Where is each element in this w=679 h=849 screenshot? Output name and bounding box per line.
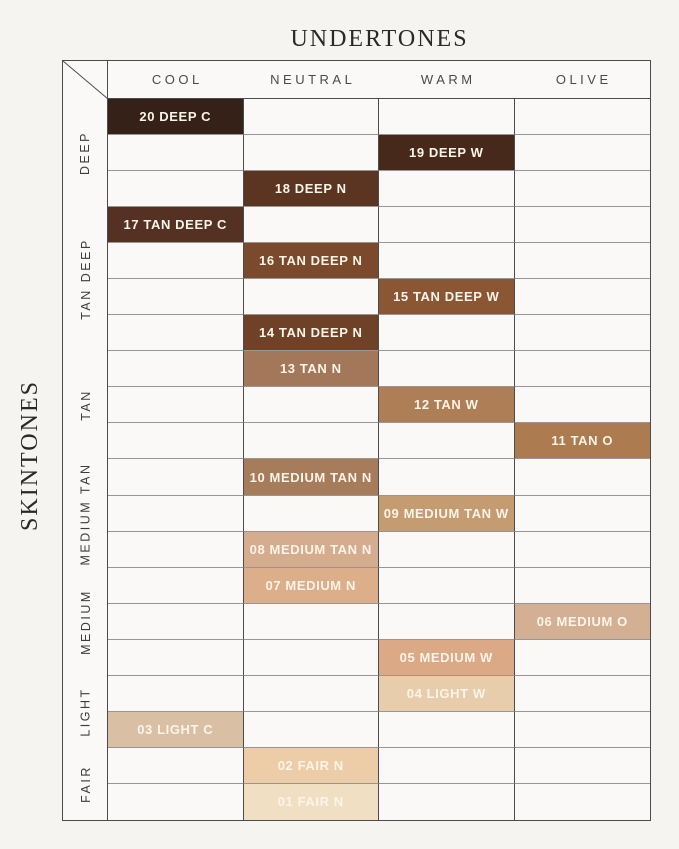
empty-cell (244, 207, 380, 243)
empty-cell (108, 171, 244, 207)
row-group-label-text: TAN (78, 390, 92, 422)
shade-swatch: 16 TAN DEEP N (244, 243, 380, 279)
shade-swatch: 13 TAN N (244, 351, 380, 387)
empty-cell (379, 784, 515, 820)
empty-cell (515, 387, 651, 423)
shade-swatch: 04 LIGHT W (379, 676, 515, 712)
row-group-label-text: LIGHT (79, 687, 93, 736)
empty-cell (515, 243, 651, 279)
empty-cell (379, 315, 515, 351)
empty-cell (244, 712, 380, 748)
empty-cell (244, 604, 380, 640)
shade-swatch: 09 MEDIUM TAN W (379, 496, 515, 532)
empty-cell (244, 99, 380, 135)
empty-cell (515, 496, 651, 532)
shade-swatch: 03 LIGHT C (108, 712, 244, 748)
empty-cell (515, 351, 651, 387)
empty-cell (108, 784, 244, 820)
empty-cell (108, 279, 244, 315)
empty-cell (515, 712, 651, 748)
empty-cell (108, 387, 244, 423)
empty-cell (515, 207, 651, 243)
empty-cell (379, 423, 515, 459)
row-group-label-text: MEDIUM TAN (79, 462, 93, 565)
shade-swatch: 12 TAN W (379, 387, 515, 423)
row-group-label-text: TAN DEEP (79, 238, 93, 320)
empty-cell (515, 532, 651, 568)
empty-cell (379, 351, 515, 387)
row-group-label-text: DEEP (78, 131, 92, 175)
shade-swatch: 20 DEEP C (108, 99, 244, 135)
shade-swatch: 18 DEEP N (244, 171, 380, 207)
side-axis-title-text: SKINTONES (17, 380, 44, 531)
empty-cell (108, 640, 244, 676)
column-header-cool: COOL (108, 72, 244, 87)
shade-swatch: 02 FAIR N (244, 748, 380, 784)
shade-swatch: 06 MEDIUM O (515, 604, 651, 640)
empty-cell (108, 315, 244, 351)
empty-cell (244, 279, 380, 315)
empty-cell (108, 496, 244, 532)
undertone-header-row: COOLNEUTRALWARMOLIVE (108, 61, 650, 99)
empty-cell (244, 640, 380, 676)
empty-cell (244, 496, 380, 532)
empty-cell (244, 423, 380, 459)
empty-cell (379, 712, 515, 748)
empty-cell (379, 99, 515, 135)
row-group-label-text: MEDIUM (79, 589, 93, 655)
empty-cell (515, 171, 651, 207)
empty-cell (515, 135, 651, 171)
column-header-neutral: NEUTRAL (244, 72, 380, 87)
empty-cell (515, 99, 651, 135)
shade-swatch: 15 TAN DEEP W (379, 279, 515, 315)
shade-swatch: 01 FAIR N (244, 784, 380, 820)
shade-swatch: 19 DEEP W (379, 135, 515, 171)
empty-cell (108, 243, 244, 279)
empty-cell (515, 676, 651, 712)
empty-cell (244, 676, 380, 712)
empty-cell (515, 568, 651, 604)
shade-swatch: 11 TAN O (515, 423, 651, 459)
column-header-olive: OLIVE (515, 72, 651, 87)
empty-cell (108, 676, 244, 712)
shade-swatch: 05 MEDIUM W (379, 640, 515, 676)
chart-title: UNDERTONES (107, 26, 652, 53)
empty-cell (515, 459, 651, 495)
empty-cell (379, 604, 515, 640)
empty-cell (515, 640, 651, 676)
empty-cell (108, 604, 244, 640)
empty-cell (515, 315, 651, 351)
empty-cell (379, 748, 515, 784)
empty-cell (108, 748, 244, 784)
empty-cell (515, 279, 651, 315)
empty-cell (379, 171, 515, 207)
empty-cell (108, 423, 244, 459)
empty-cell (244, 135, 380, 171)
shade-swatch: 10 MEDIUM TAN N (244, 459, 380, 495)
empty-cell (108, 351, 244, 387)
empty-cell (379, 568, 515, 604)
empty-cell (379, 243, 515, 279)
empty-cell (379, 207, 515, 243)
empty-cell (244, 387, 380, 423)
empty-cell (108, 459, 244, 495)
shade-swatch: 17 TAN DEEP C (108, 207, 244, 243)
skintone-group-labels: DEEPTAN DEEPTANMEDIUM TANMEDIUMLIGHTFAIR (63, 99, 108, 820)
empty-cell (515, 748, 651, 784)
column-header-warm: WARM (379, 72, 515, 87)
empty-cell (379, 459, 515, 495)
empty-cell (108, 532, 244, 568)
empty-cell (515, 784, 651, 820)
shade-grid: 20 DEEP C19 DEEP W18 DEEP N17 TAN DEEP C… (108, 99, 650, 820)
shade-swatch: 07 MEDIUM N (244, 568, 380, 604)
row-group-label-text: FAIR (78, 765, 92, 803)
shade-matrix: COOLNEUTRALWARMOLIVE DEEPTAN DEEPTANMEDI… (62, 60, 651, 821)
empty-cell (108, 568, 244, 604)
empty-cell (379, 532, 515, 568)
empty-cell (108, 135, 244, 171)
shade-swatch: 08 MEDIUM TAN N (244, 532, 380, 568)
shade-swatch: 14 TAN DEEP N (244, 315, 380, 351)
